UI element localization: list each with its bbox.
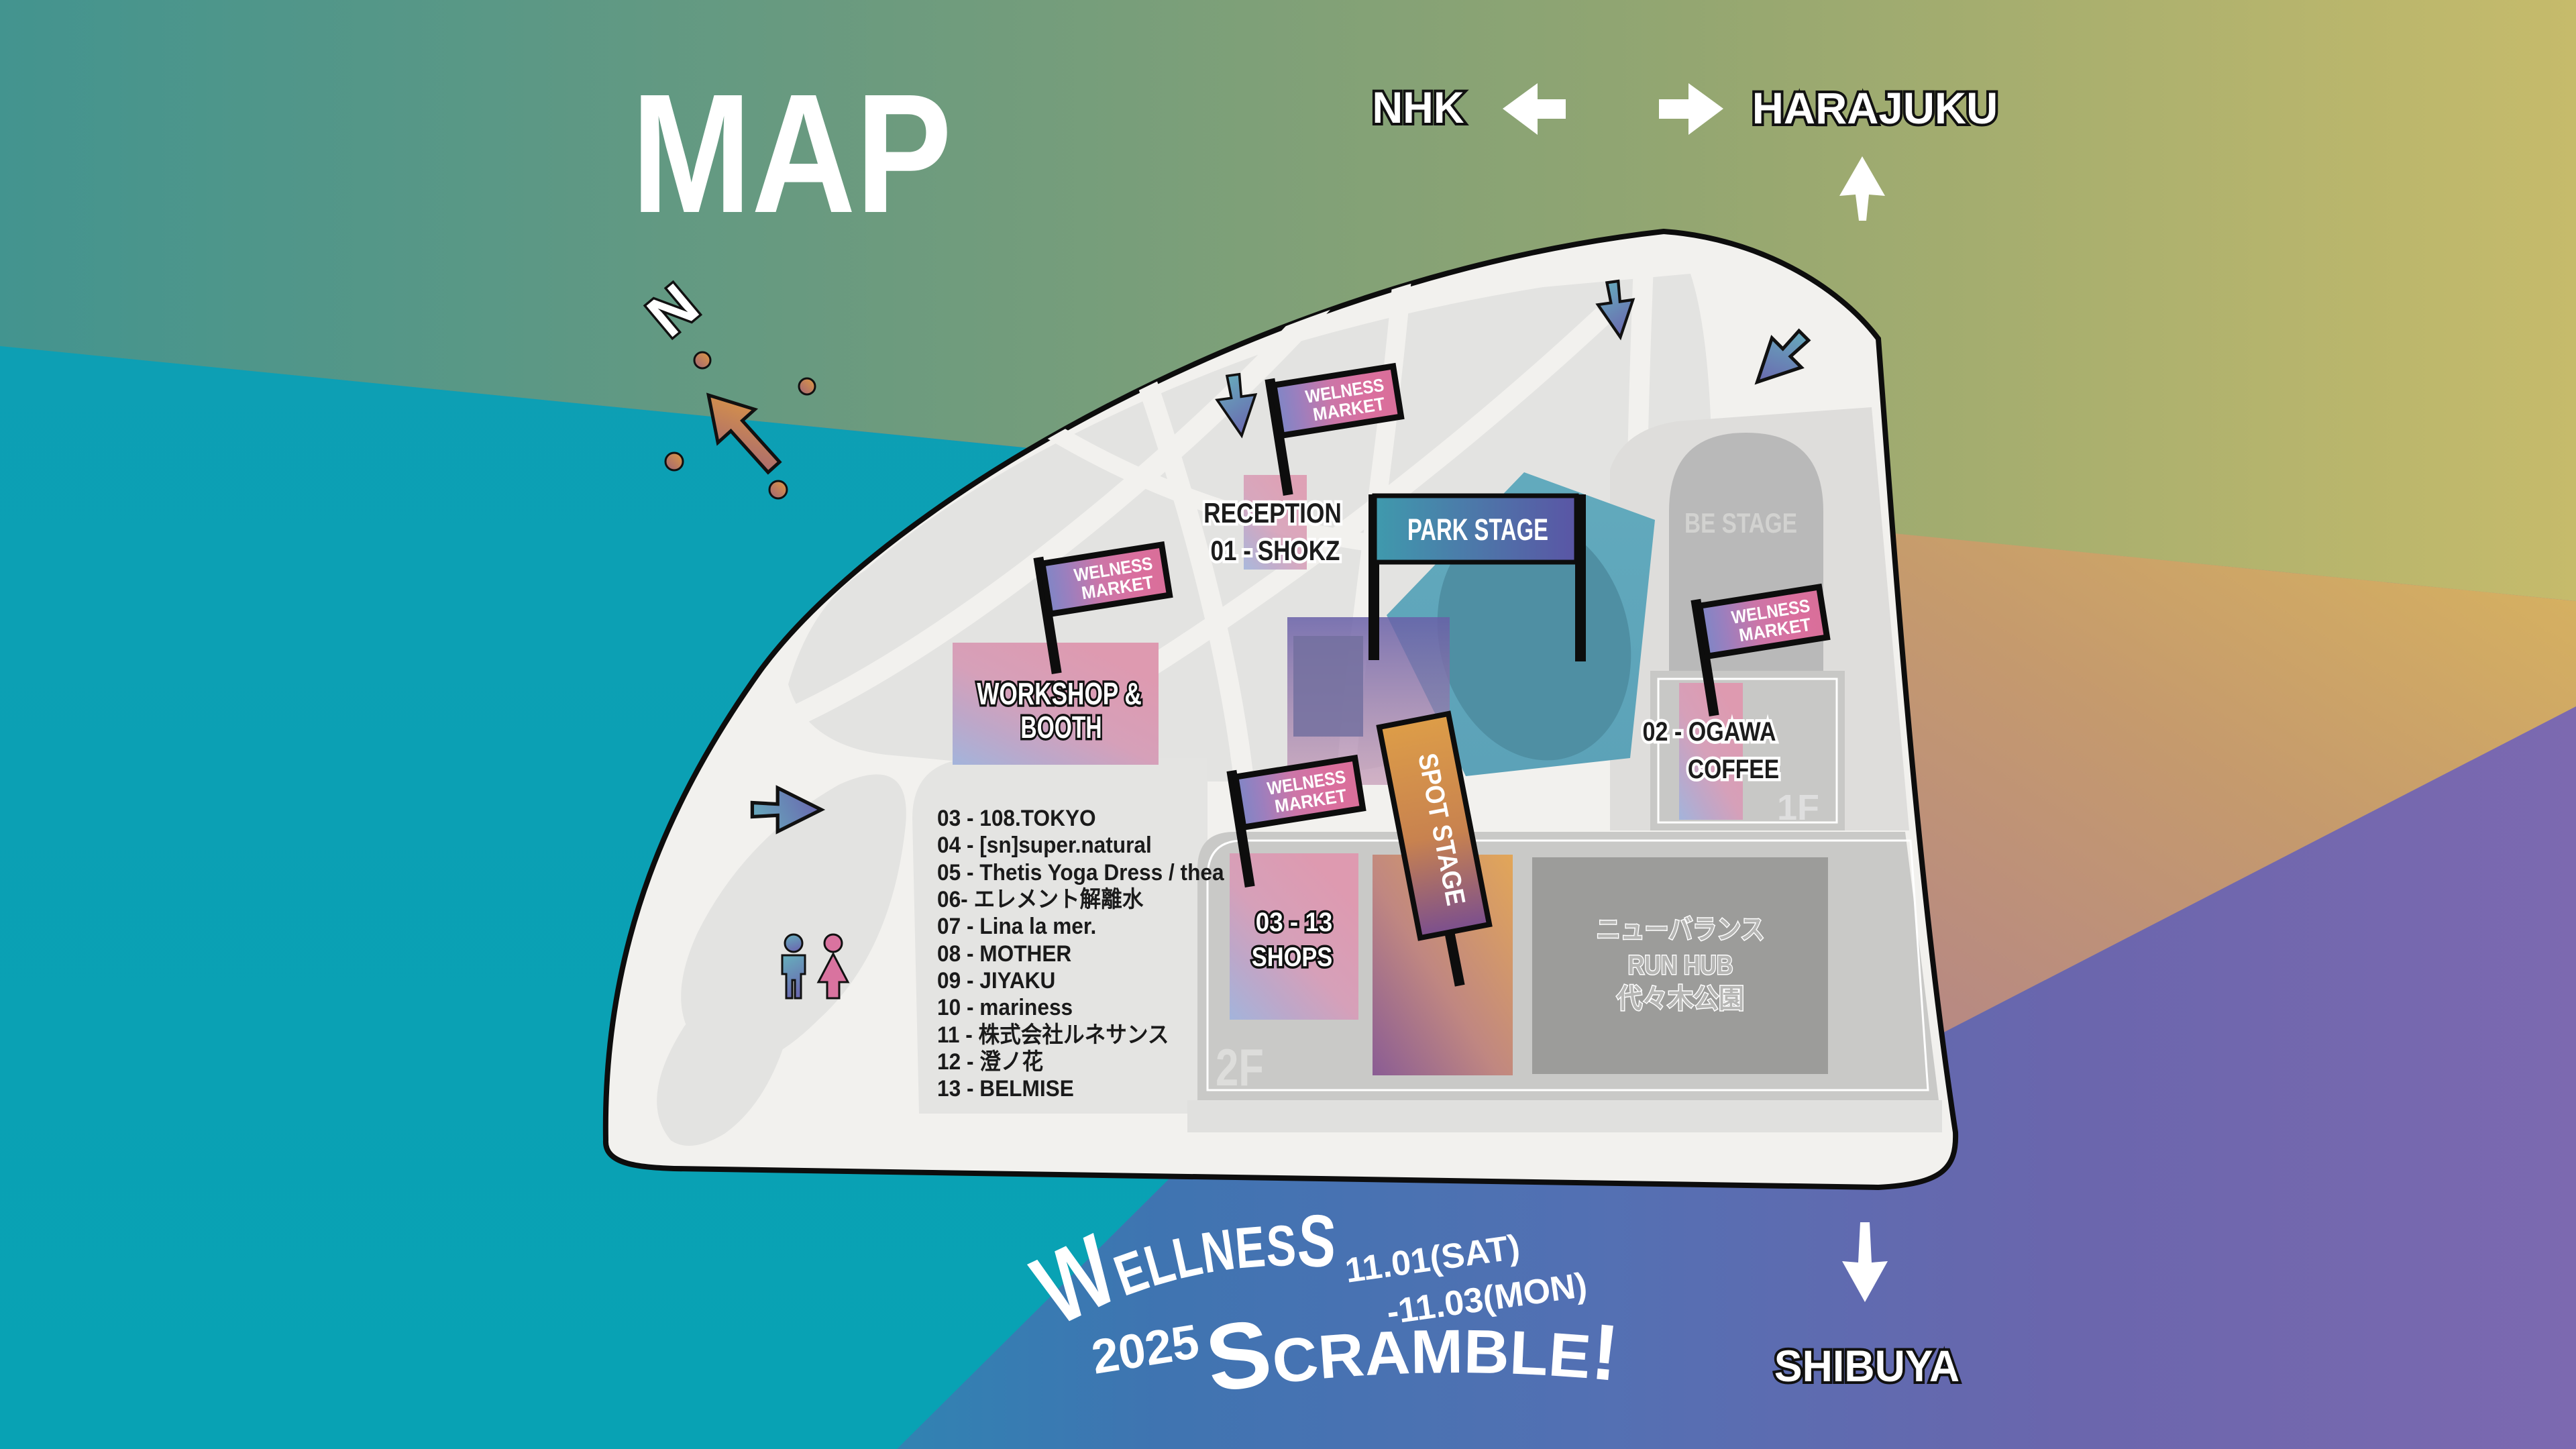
- svg-text:WORKSHOP &: WORKSHOP &: [977, 676, 1142, 711]
- svg-text:HARAJUKU: HARAJUKU: [1752, 84, 1998, 133]
- svg-text:RUN HUB: RUN HUB: [1628, 949, 1733, 979]
- svg-text:RECEPTION: RECEPTION: [1203, 498, 1342, 529]
- svg-text:07 - Lina la mer.: 07 - Lina la mer.: [937, 913, 1096, 938]
- svg-text:10 - mariness: 10 - mariness: [937, 994, 1073, 1020]
- svg-text:PARK STAGE: PARK STAGE: [1407, 513, 1548, 547]
- svg-text:NHK: NHK: [1373, 83, 1464, 133]
- svg-text:01 - SHOKZ: 01 - SHOKZ: [1211, 535, 1340, 567]
- svg-text:13 - BELMISE: 13 - BELMISE: [937, 1075, 1074, 1101]
- svg-text:05 - Thetis Yoga Dress / thea: 05 - Thetis Yoga Dress / thea: [937, 859, 1224, 885]
- svg-text:MAP: MAP: [631, 58, 952, 248]
- svg-text:09 - JIYAKU: 09 - JIYAKU: [937, 967, 1055, 993]
- svg-text:代々木公園: 代々木公園: [1616, 984, 1744, 1014]
- svg-text:BE STAGE: BE STAGE: [1684, 507, 1797, 539]
- svg-text:ニューバランス: ニューバランス: [1597, 915, 1765, 945]
- svg-text:2F: 2F: [1216, 1038, 1264, 1097]
- svg-text:1F: 1F: [1777, 788, 1819, 828]
- svg-text:03 - 13: 03 - 13: [1256, 908, 1333, 938]
- svg-text:06- エレメント解離水: 06- エレメント解離水: [937, 886, 1144, 912]
- svg-text:04 - [sn]super.natural: 04 - [sn]super.natural: [937, 832, 1152, 857]
- svg-text:COFFEE: COFFEE: [1688, 754, 1779, 784]
- svg-text:08 - MOTHER: 08 - MOTHER: [937, 941, 1072, 966]
- svg-text:SHOPS: SHOPS: [1252, 942, 1332, 972]
- svg-text:03 - 108.TOKYO: 03 - 108.TOKYO: [937, 805, 1096, 830]
- svg-text:02 - OGAWA: 02 - OGAWA: [1643, 716, 1776, 746]
- svg-text:BOOTH: BOOTH: [1020, 710, 1102, 745]
- svg-text:12 - 澄ノ花: 12 - 澄ノ花: [937, 1049, 1043, 1074]
- svg-text:SHIBUYA: SHIBUYA: [1774, 1342, 1960, 1391]
- svg-text:11 - 株式会社ルネサンス: 11 - 株式会社ルネサンス: [937, 1022, 1169, 1047]
